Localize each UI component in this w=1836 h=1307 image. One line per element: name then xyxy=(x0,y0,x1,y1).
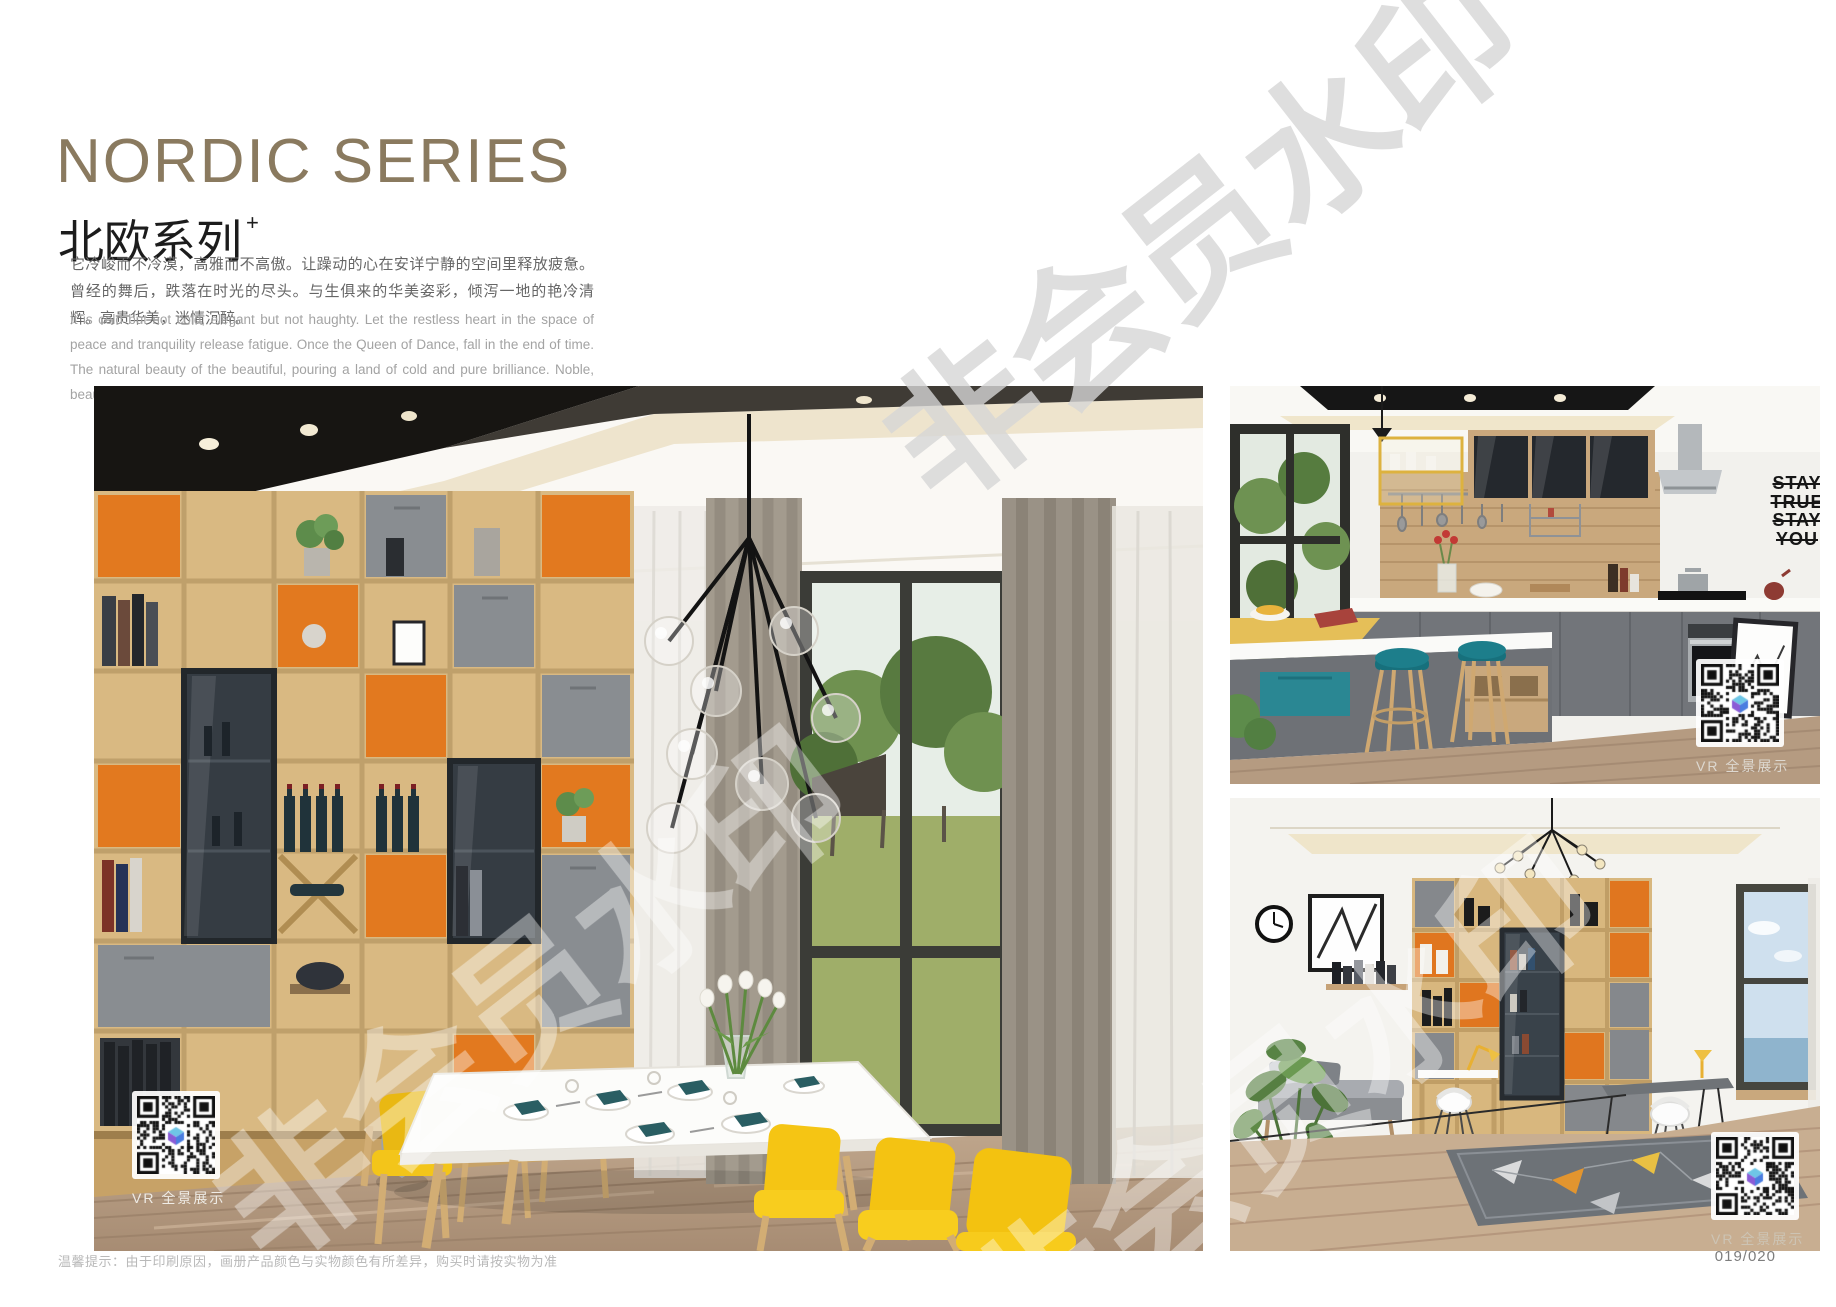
qr-label: VR 全景展示 xyxy=(132,1188,220,1208)
page-title: NORDIC SERIES xyxy=(56,126,571,197)
wall-decal-line: STAY xyxy=(1762,511,1820,530)
qr-image xyxy=(1716,1137,1794,1215)
wall-decal-line: STAY xyxy=(1762,474,1820,493)
dining-room-scene xyxy=(94,386,1203,1251)
page-subtitle-mark: + xyxy=(246,210,259,235)
qr-label: VR 全景展示 xyxy=(1711,1229,1799,1249)
wall-decal-line: YOU xyxy=(1762,530,1820,549)
footnote: 温馨提示：由于印刷原因，画册产品颜色与实物颜色有所差异，购买时请按实物为准 xyxy=(58,1251,558,1270)
qr-label: VR 全景展示 xyxy=(1696,756,1784,776)
wall-art xyxy=(1310,896,1382,970)
catalog-page: NORDIC SERIES 北欧系列+ 它冷峻而不冷漠，高雅而不高傲。让躁动的心… xyxy=(0,0,1836,1307)
vr-qr-code: VR 全景展示 xyxy=(1711,1132,1799,1249)
page-number: 019/020 xyxy=(1715,1248,1776,1265)
dining-room-photo: VR 全景展示 xyxy=(94,386,1203,1251)
study-window xyxy=(1736,878,1820,1108)
wall-decal: STAY TRUE STAY YOU xyxy=(1762,474,1820,549)
qr-image xyxy=(137,1096,215,1174)
qr-image xyxy=(1701,664,1779,742)
study-room-photo: VR 全景展示 xyxy=(1230,798,1820,1251)
vr-qr-code: VR 全景展示 xyxy=(132,1091,220,1208)
wall-decal-line: TRUE xyxy=(1762,493,1820,512)
kitchen-photo: STAY TRUE STAY YOU VR 全景展示 xyxy=(1230,386,1820,784)
vr-qr-code: VR 全景展示 xyxy=(1696,659,1784,776)
